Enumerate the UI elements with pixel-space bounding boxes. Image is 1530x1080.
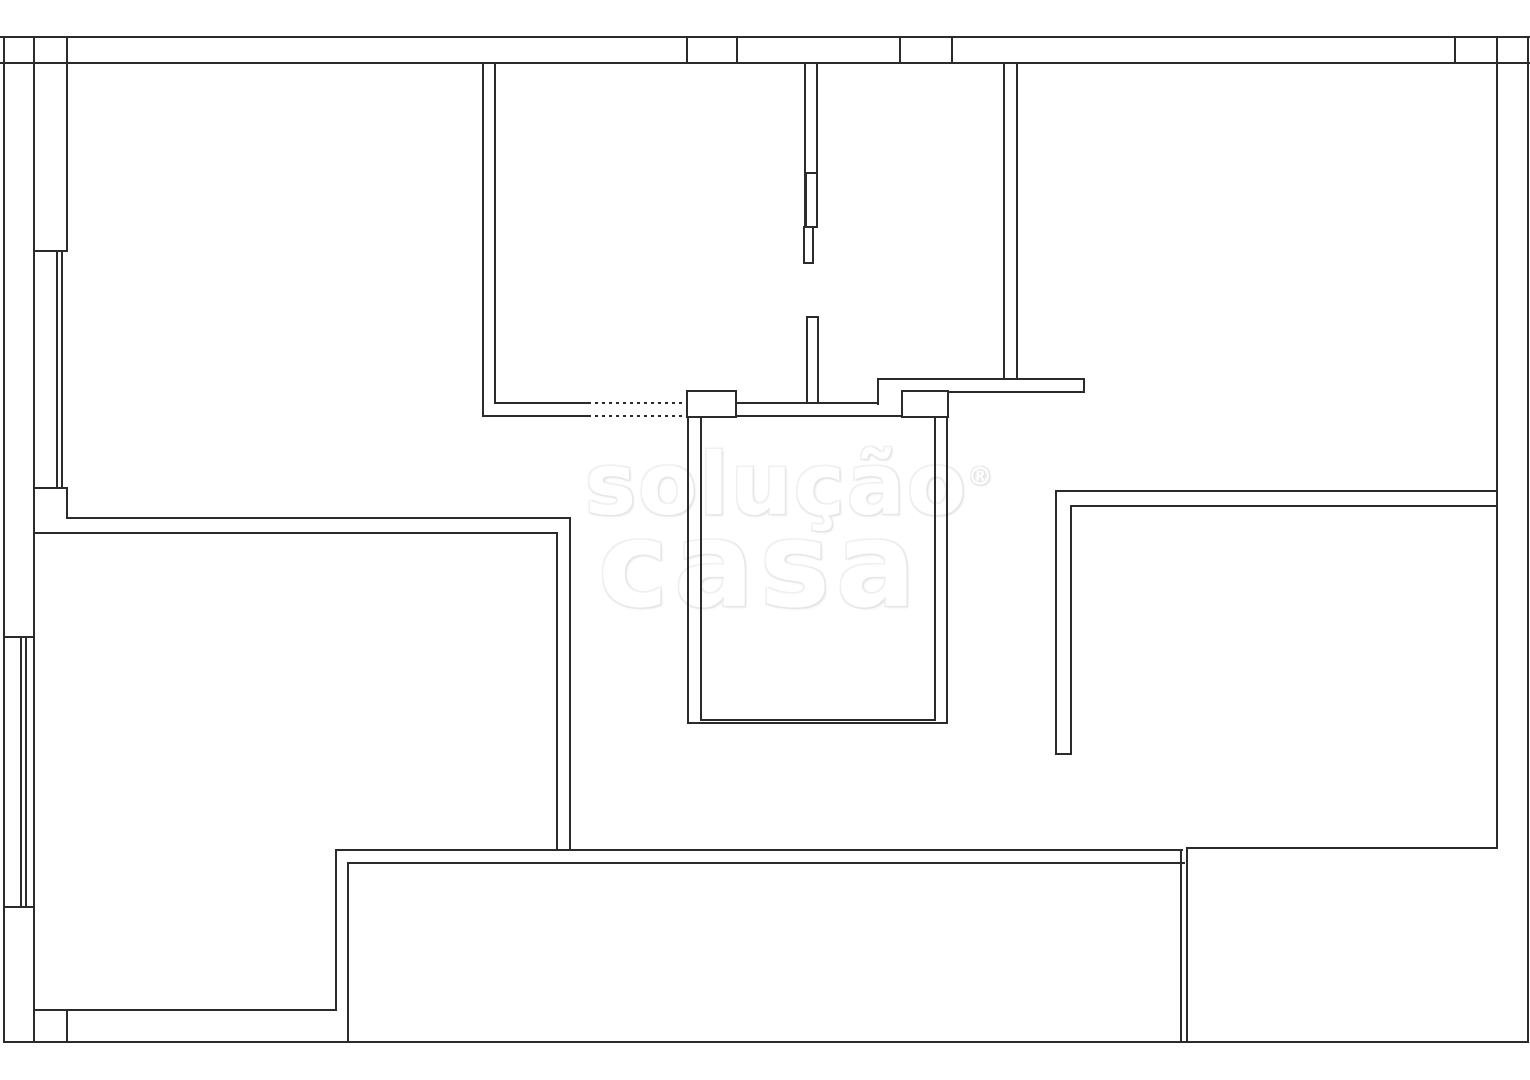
wall-segment bbox=[0, 62, 1530, 64]
wall-segment bbox=[700, 417, 702, 721]
wall-segment bbox=[33, 532, 557, 534]
wall-segment bbox=[3, 1041, 1528, 1043]
wall-segment bbox=[1003, 64, 1005, 379]
wall-segment bbox=[3, 36, 5, 1043]
wall-segment bbox=[61, 252, 63, 487]
wall-segment bbox=[66, 1009, 68, 1043]
wall-segment bbox=[335, 849, 337, 1010]
wall-segment bbox=[569, 517, 571, 851]
wall-segment bbox=[0, 36, 1530, 38]
wall-segment bbox=[56, 252, 58, 487]
wall-segment bbox=[494, 64, 496, 404]
wall-segment bbox=[1527, 36, 1529, 1043]
wall-segment bbox=[1016, 64, 1018, 379]
door-jamb-box bbox=[803, 226, 814, 264]
wall-segment bbox=[33, 487, 68, 489]
wall-segment bbox=[347, 862, 349, 1043]
wall-segment bbox=[946, 417, 948, 724]
door-jamb-box bbox=[901, 390, 949, 418]
door-jamb-box bbox=[805, 172, 818, 228]
door-jamb-box bbox=[686, 390, 737, 418]
door-jamb-box bbox=[806, 316, 819, 404]
wall-segment bbox=[1072, 505, 1498, 507]
wall-segment bbox=[66, 36, 68, 250]
wall-segment bbox=[1055, 490, 1497, 492]
wall-segment bbox=[687, 722, 948, 724]
wall-segment bbox=[736, 415, 902, 417]
wall-segment bbox=[1070, 505, 1072, 755]
wall-segment bbox=[482, 415, 588, 417]
watermark-brand-line2: casa bbox=[585, 506, 935, 624]
wall-segment bbox=[1083, 378, 1085, 393]
wall-segment bbox=[1496, 36, 1498, 849]
wall-segment bbox=[899, 36, 901, 64]
wall-segment bbox=[877, 378, 879, 405]
wall-segment bbox=[687, 417, 689, 724]
wall-segment bbox=[482, 64, 484, 417]
wall-segment bbox=[3, 906, 35, 908]
wall-segment bbox=[20, 638, 22, 906]
wall-segment bbox=[934, 417, 936, 721]
wall-segment bbox=[494, 402, 588, 404]
wall-segment bbox=[736, 36, 738, 64]
wall-segment bbox=[348, 862, 1185, 864]
wall-segment bbox=[66, 488, 68, 519]
wall-segment bbox=[877, 378, 1085, 380]
wall-segment bbox=[951, 36, 953, 64]
wall-segment bbox=[1186, 847, 1498, 849]
registered-trademark-icon: ® bbox=[968, 462, 994, 490]
watermark: solução® casa bbox=[585, 442, 935, 624]
wall-segment bbox=[1454, 36, 1456, 64]
wall-segment bbox=[335, 849, 1183, 851]
wall-segment bbox=[556, 532, 558, 850]
wall-segment bbox=[33, 1009, 337, 1011]
wall-segment bbox=[66, 517, 570, 519]
wall-segment bbox=[686, 36, 688, 64]
wall-segment bbox=[25, 638, 27, 906]
wall-segment bbox=[1186, 849, 1188, 1043]
wall-segment bbox=[948, 391, 1085, 393]
wall-segment bbox=[1055, 753, 1072, 755]
wall-segment bbox=[700, 719, 936, 721]
dashed-opening-line bbox=[588, 415, 687, 417]
dashed-opening-line bbox=[588, 402, 687, 404]
wall-segment bbox=[33, 36, 35, 1043]
wall-segment bbox=[1055, 490, 1057, 755]
wall-segment bbox=[3, 636, 35, 638]
floor-plan: solução® casa bbox=[0, 0, 1530, 1080]
wall-segment bbox=[1180, 849, 1182, 1043]
